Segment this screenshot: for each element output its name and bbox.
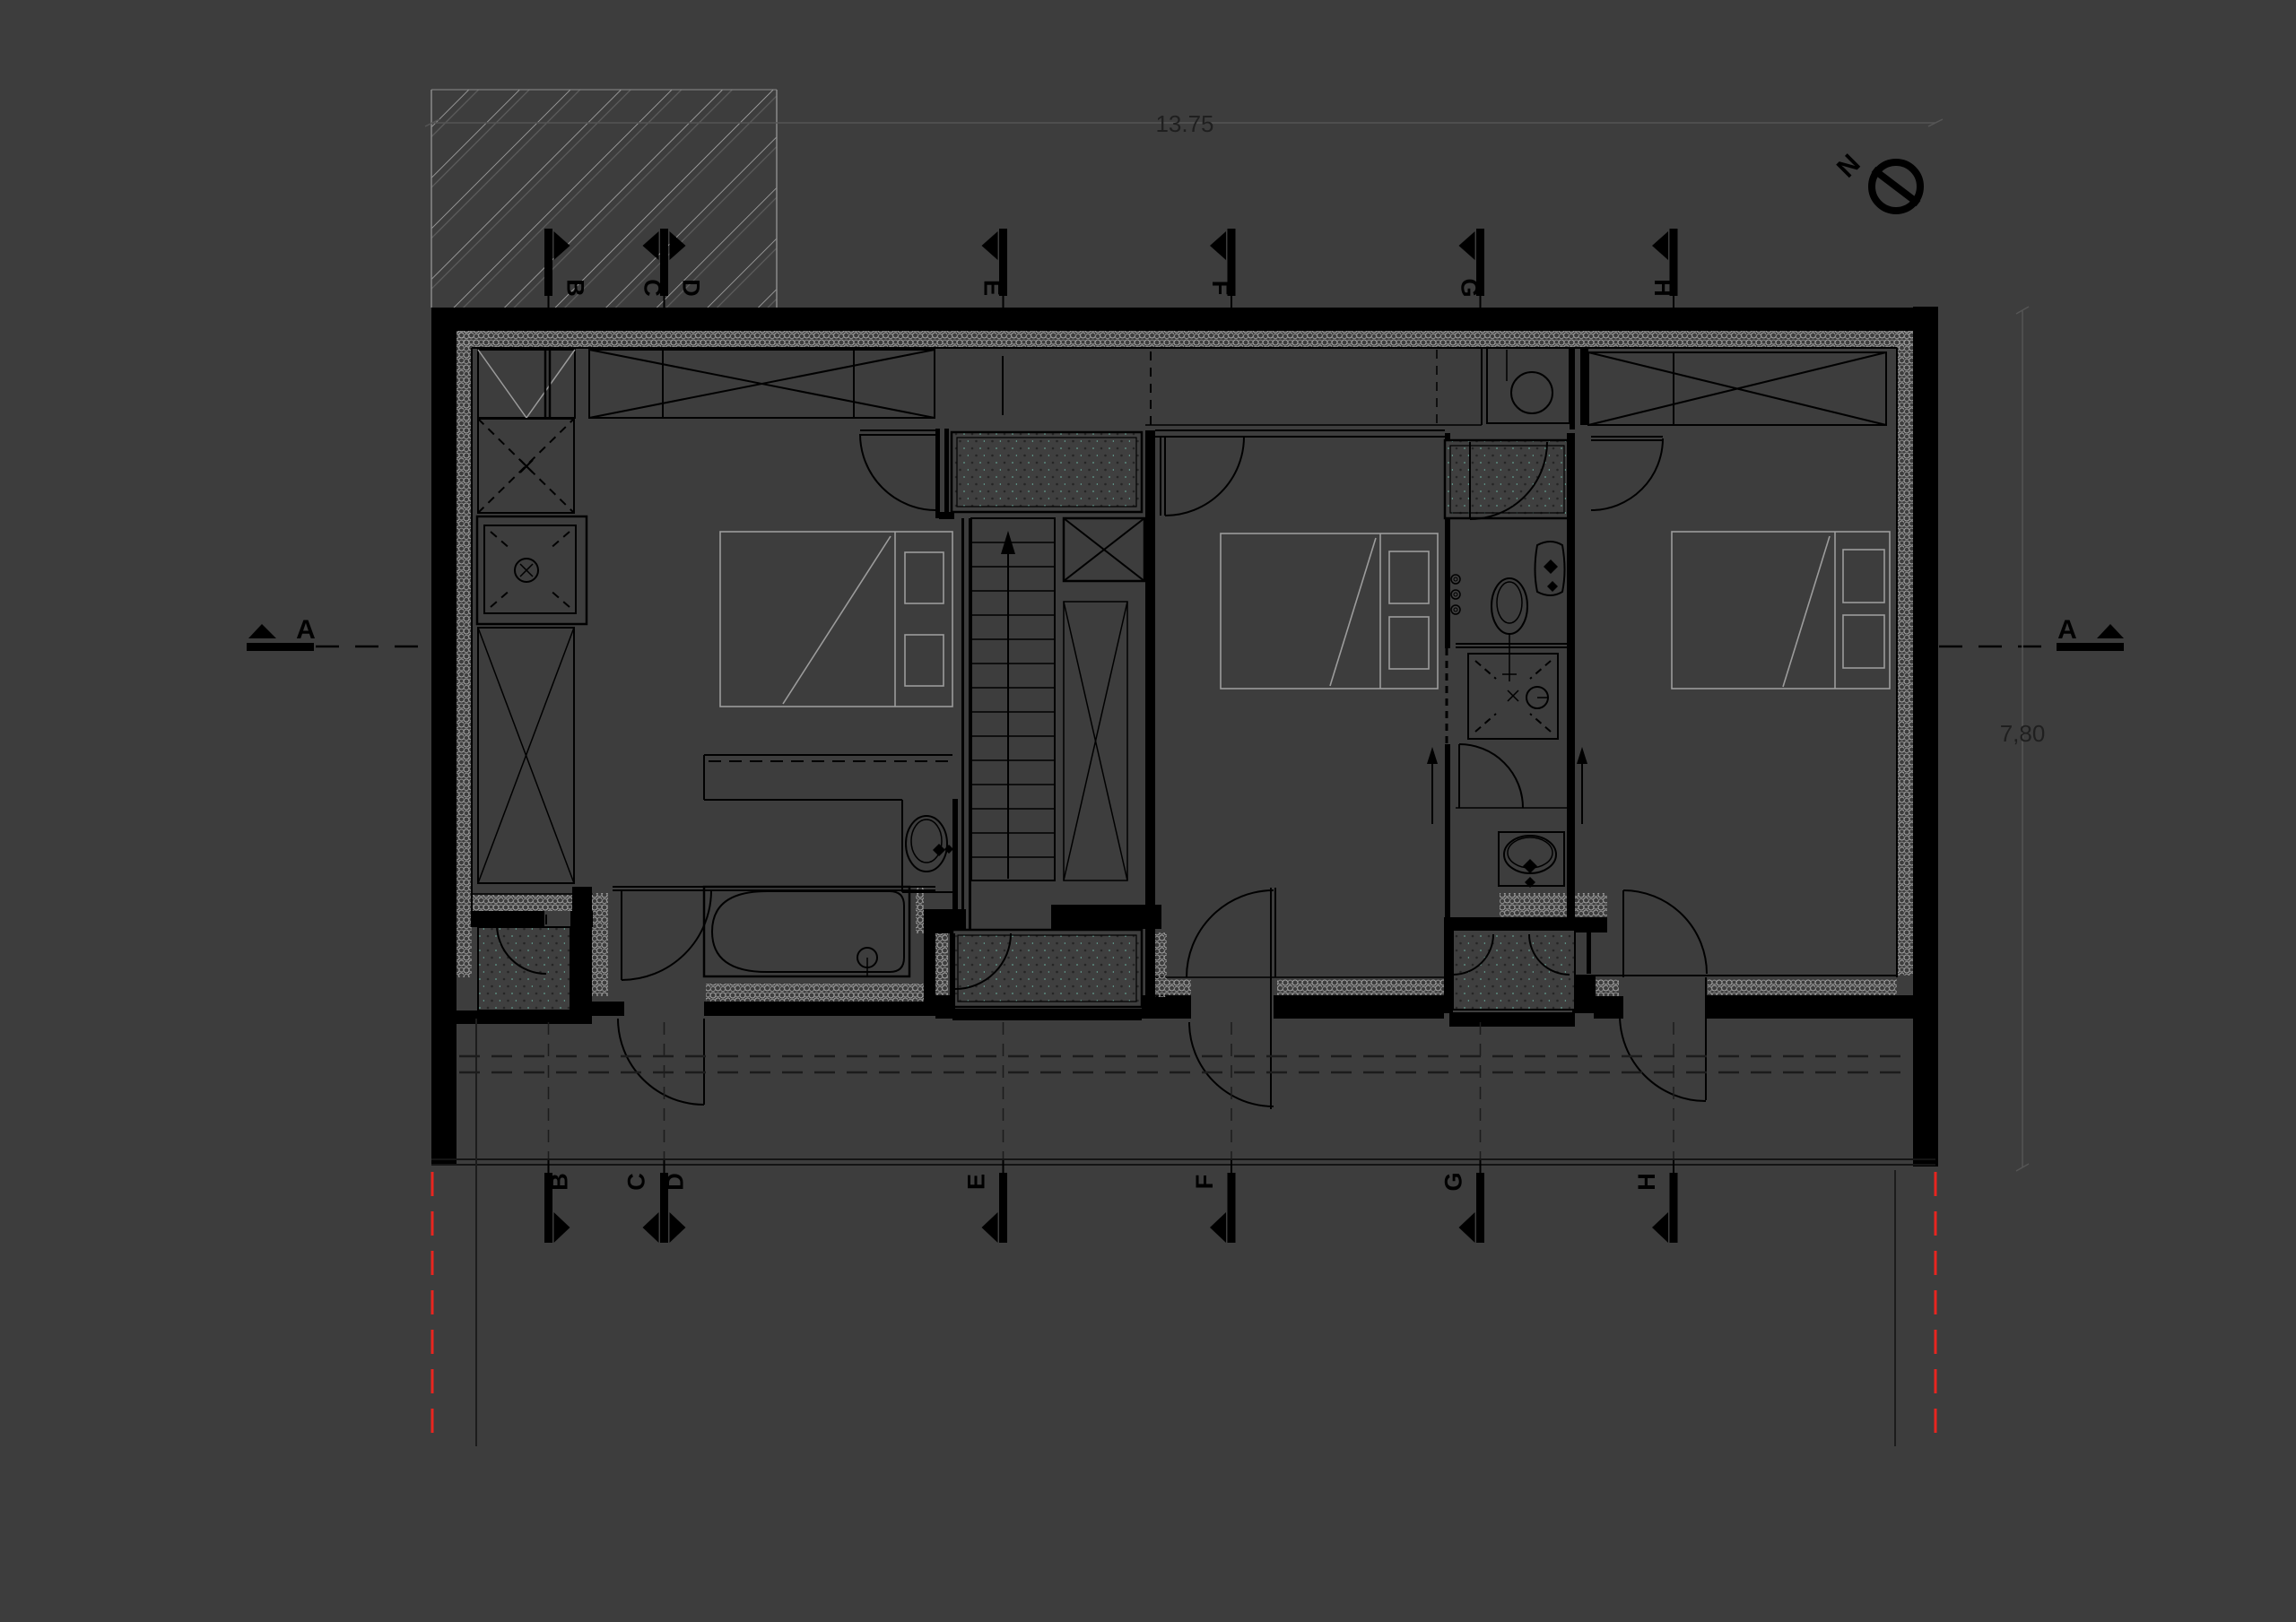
svg-text:B: B — [546, 1173, 573, 1191]
svg-text:13.75: 13.75 — [1155, 110, 1213, 137]
svg-text:E: E — [963, 1174, 990, 1190]
svg-text:D: D — [678, 279, 705, 297]
svg-text:B: B — [562, 279, 589, 297]
svg-text:C: C — [639, 279, 666, 297]
svg-text:D: D — [662, 1173, 689, 1191]
svg-text:E: E — [979, 280, 1006, 296]
svg-text:7,80: 7,80 — [2000, 720, 2046, 747]
svg-text:F: F — [1191, 1175, 1218, 1190]
svg-text:A: A — [296, 615, 316, 645]
svg-text:A: A — [2057, 615, 2077, 645]
svg-text:G: G — [1440, 1172, 1467, 1191]
svg-text:C: C — [623, 1173, 650, 1191]
svg-text:G: G — [1457, 278, 1483, 297]
svg-text:H: H — [1649, 279, 1676, 297]
svg-text:H: H — [1633, 1173, 1660, 1191]
svg-text:F: F — [1207, 281, 1234, 296]
